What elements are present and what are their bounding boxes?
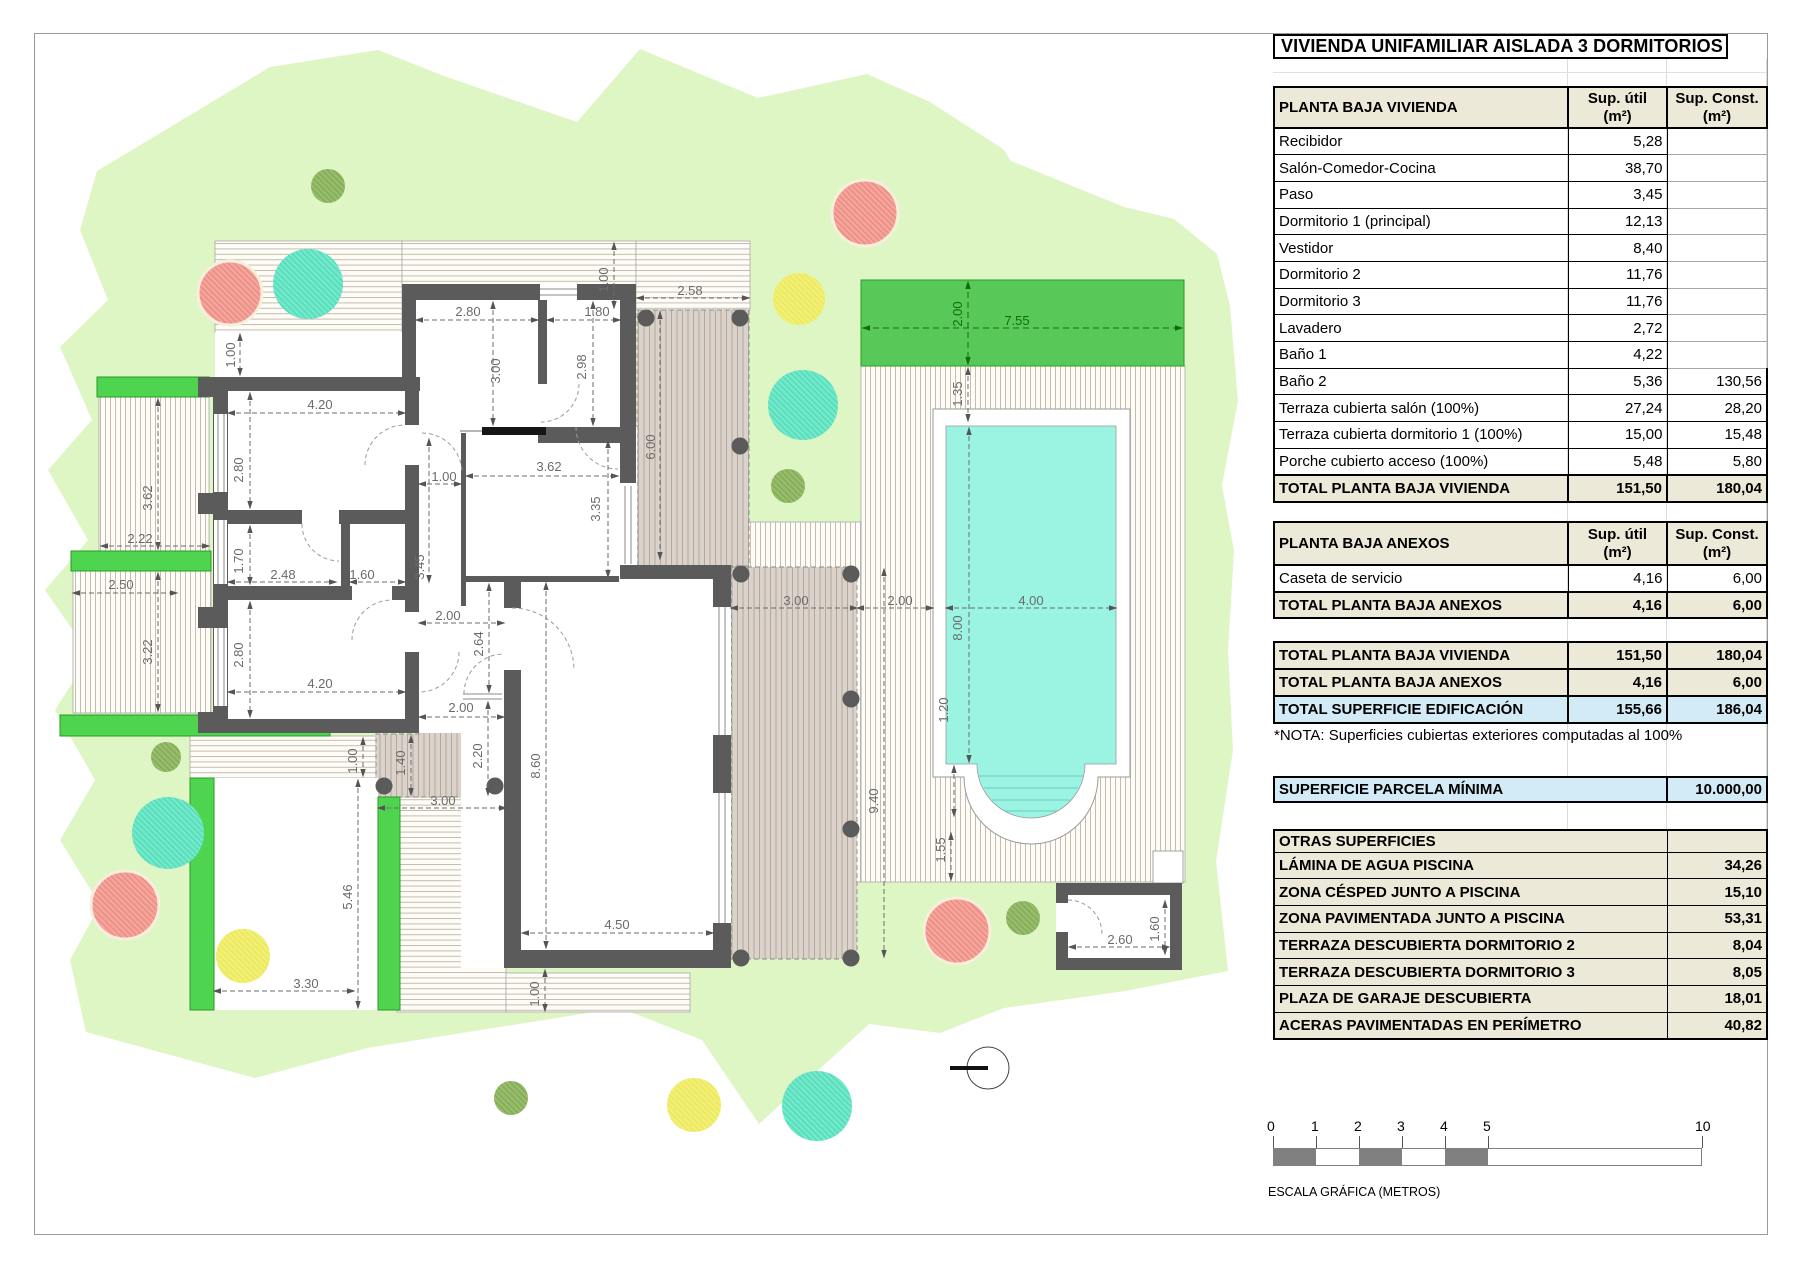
svg-text:3.30: 3.30	[293, 976, 318, 991]
svg-text:4.20: 4.20	[307, 397, 332, 412]
svg-text:3.00: 3.00	[430, 793, 455, 808]
svg-text:3.22: 3.22	[140, 639, 155, 664]
svg-text:8.00: 8.00	[950, 615, 965, 640]
svg-text:1.00: 1.00	[596, 267, 611, 292]
svg-text:1.40: 1.40	[393, 750, 408, 775]
svg-text:7.55: 7.55	[1004, 313, 1029, 328]
svg-text:2.98: 2.98	[574, 354, 589, 379]
svg-text:2.60: 2.60	[1107, 932, 1132, 947]
svg-text:3.00: 3.00	[783, 593, 808, 608]
svg-text:2.80: 2.80	[455, 304, 480, 319]
svg-text:2.50: 2.50	[108, 577, 133, 592]
svg-text:8.60: 8.60	[528, 753, 543, 778]
svg-text:4.20: 4.20	[307, 676, 332, 691]
svg-text:1.35: 1.35	[950, 381, 965, 406]
svg-text:2.80: 2.80	[231, 642, 246, 667]
svg-text:1.80: 1.80	[584, 304, 609, 319]
svg-text:2.80: 2.80	[231, 457, 246, 482]
svg-text:1.70: 1.70	[231, 548, 246, 573]
svg-text:3.62: 3.62	[140, 485, 155, 510]
svg-text:9.40: 9.40	[866, 788, 881, 813]
svg-text:6.00: 6.00	[643, 434, 658, 459]
svg-text:1.00: 1.00	[223, 342, 238, 367]
svg-text:1.20: 1.20	[936, 697, 951, 722]
svg-text:1.60: 1.60	[349, 567, 374, 582]
svg-text:1.55: 1.55	[933, 837, 948, 862]
svg-text:2.00: 2.00	[950, 301, 965, 326]
svg-text:4.50: 4.50	[604, 917, 629, 932]
svg-text:2.22: 2.22	[127, 531, 152, 546]
svg-text:1.00: 1.00	[345, 748, 360, 773]
svg-text:3.00: 3.00	[488, 358, 503, 383]
svg-text:2.00: 2.00	[887, 593, 912, 608]
svg-text:2.20: 2.20	[470, 743, 485, 768]
svg-text:2.58: 2.58	[677, 283, 702, 298]
svg-text:2.00: 2.00	[435, 608, 460, 623]
svg-text:3.35: 3.35	[588, 496, 603, 521]
svg-text:2.48: 2.48	[270, 567, 295, 582]
svg-text:5.46: 5.46	[340, 884, 355, 909]
svg-text:1.60: 1.60	[1147, 916, 1162, 941]
svg-text:1.00: 1.00	[431, 469, 456, 484]
svg-text:1.00: 1.00	[527, 981, 542, 1006]
svg-text:3.45: 3.45	[412, 554, 427, 579]
svg-text:2.64: 2.64	[471, 631, 486, 656]
svg-text:2.00: 2.00	[448, 700, 473, 715]
svg-text:4.00: 4.00	[1018, 593, 1043, 608]
svg-text:3.62: 3.62	[536, 459, 561, 474]
